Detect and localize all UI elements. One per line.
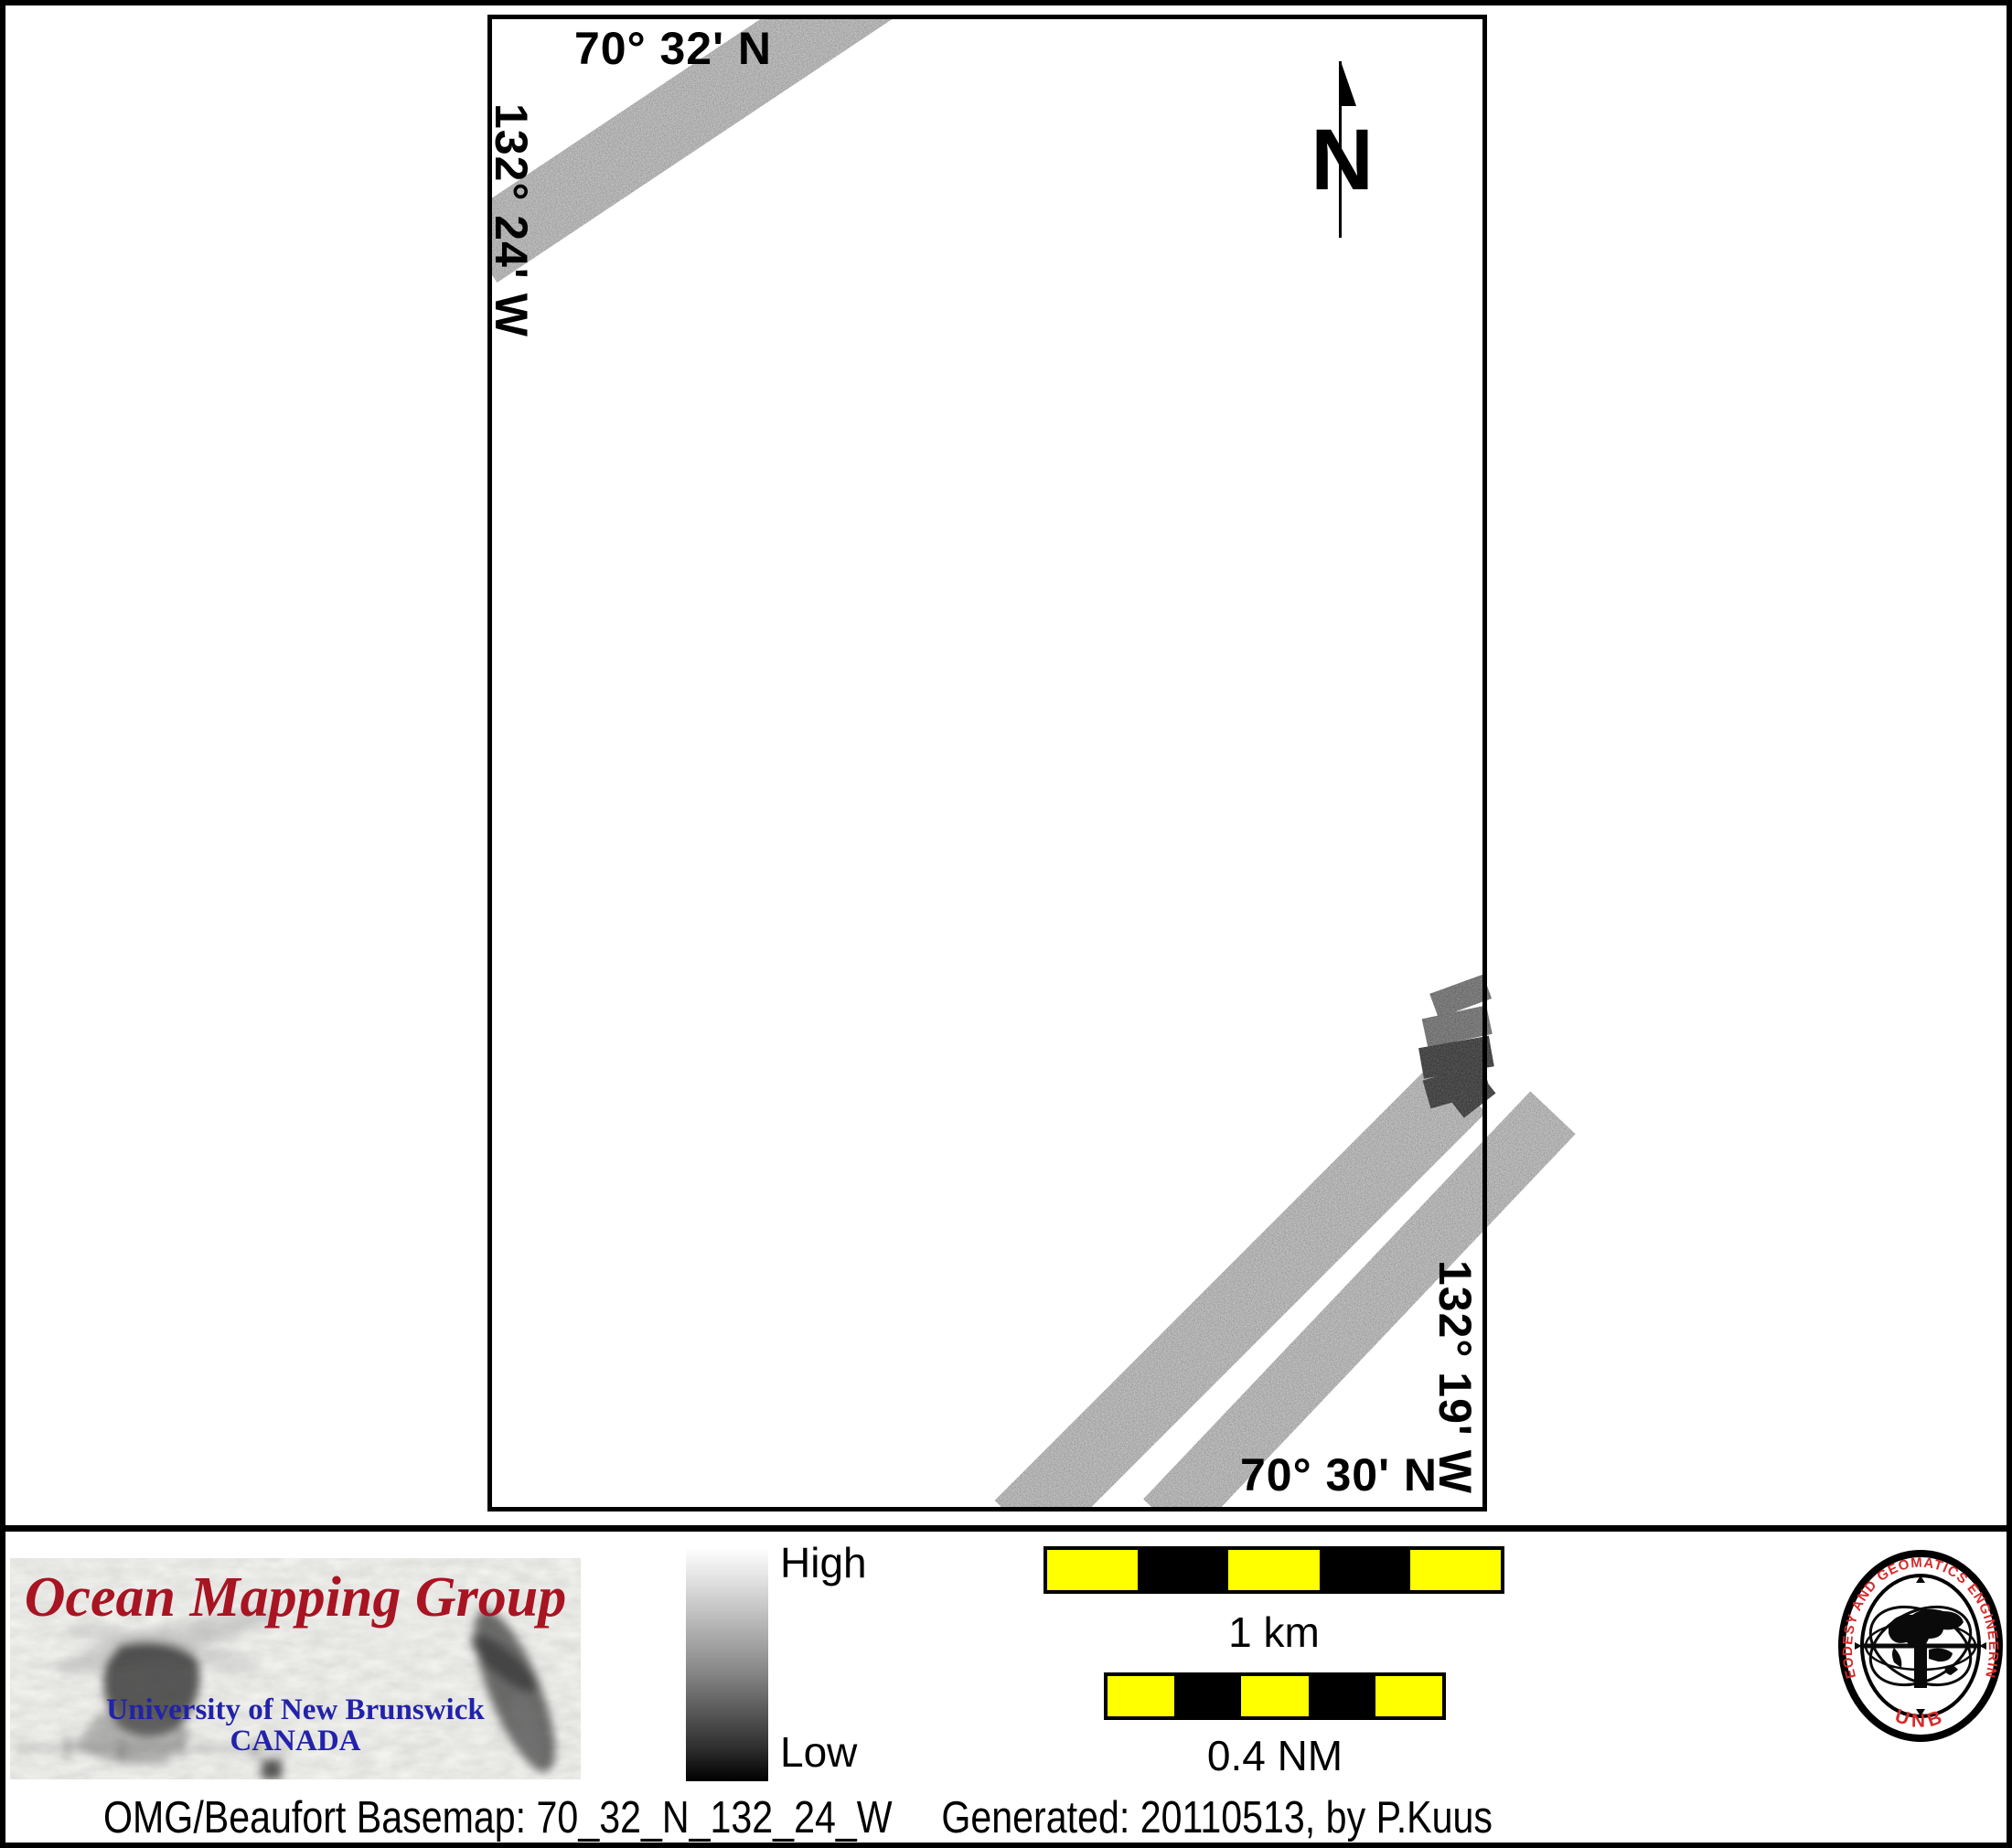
scalebar-segment <box>1410 1550 1501 1590</box>
north-label: N <box>1299 117 1386 204</box>
legend-low-label: Low <box>780 1727 857 1777</box>
legend-high-label: High <box>780 1538 867 1587</box>
longitude-label-left: 132° 24' W <box>485 103 538 337</box>
omg-logo-country: CANADA <box>10 1725 581 1758</box>
scalebar-nm-label: 0.4 NM <box>1104 1731 1446 1780</box>
scalebar-nm <box>1104 1672 1446 1720</box>
scalebar-segment <box>1108 1676 1174 1716</box>
latitude-label-top: 70° 32' N <box>574 22 772 75</box>
scalebar-km <box>1043 1546 1504 1594</box>
omg-logo: Ocean Mapping Group University of New Br… <box>10 1558 581 1779</box>
omg-basemap-page: 70° 32' N 132° 24' W 132° 19' W 70° 30' … <box>0 0 2012 1848</box>
scalebar-segment <box>1309 1676 1375 1716</box>
latitude-label-bottom: 70° 30' N <box>1240 1448 1438 1501</box>
caption-basemap: OMG/Beaufort Basemap: 70_32_N_132_24_W <box>103 1792 893 1843</box>
footer-divider <box>0 1525 2012 1532</box>
scalebar-segment <box>1228 1550 1319 1590</box>
unb-seal: GEODESY AND GEOMATICS ENGINEERING UNB <box>1837 1549 2004 1743</box>
depth-gradient-bar <box>686 1547 768 1781</box>
scalebar-segment <box>1320 1550 1410 1590</box>
caption-line: OMG/Beaufort Basemap: 70_32_N_132_24_W G… <box>103 1792 1493 1843</box>
scalebar-segment <box>1241 1676 1308 1716</box>
scalebar-km-label: 1 km <box>1043 1608 1504 1657</box>
scalebar-segment <box>1375 1676 1442 1716</box>
omg-logo-title: Ocean Mapping Group <box>10 1565 581 1630</box>
north-arrow-icon <box>1341 61 1361 109</box>
caption-generated: Generated: 20110513, by P.Kuus <box>941 1792 1493 1843</box>
scalebar-segment <box>1047 1550 1138 1590</box>
omg-logo-university: University of New Brunswick <box>10 1693 581 1727</box>
scalebar-segment <box>1174 1676 1241 1716</box>
swath-turn-patch <box>1418 975 1495 1118</box>
scalebar-segment <box>1138 1550 1228 1590</box>
sonar-swath-layer <box>0 0 2012 1527</box>
